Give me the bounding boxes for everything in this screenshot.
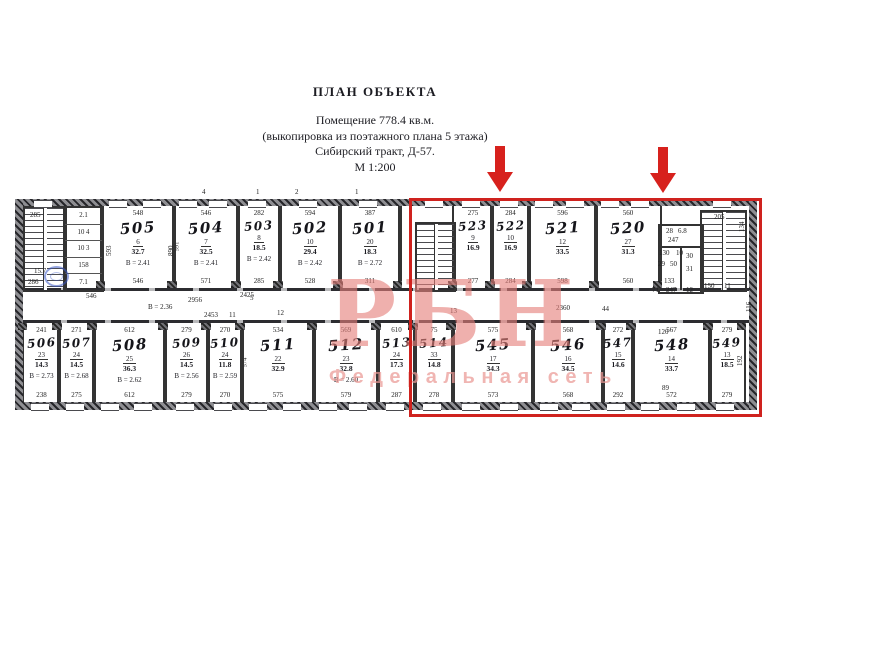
- window: [359, 200, 377, 208]
- room-pos-area: 632.7: [131, 238, 144, 257]
- blue-stamp-icon: [44, 266, 69, 287]
- room-506: 2415062314.3В = 2.73238: [22, 323, 61, 402]
- window: [176, 403, 194, 411]
- window: [143, 200, 161, 208]
- wall-pier: [236, 323, 245, 330]
- plan-annotation: 593: [106, 246, 113, 257]
- room-bottom-label: 571: [201, 277, 212, 285]
- plan-annotation: В = 2.36: [148, 304, 172, 311]
- room-number: 504: [188, 218, 225, 238]
- room-area: 11.8: [219, 360, 232, 369]
- outer-wall: [15, 199, 23, 410]
- window: [109, 200, 127, 208]
- storage-room-label: 10 3: [65, 241, 102, 258]
- plan-annotation: 286: [28, 279, 39, 286]
- room-pos-area: 2018.3: [363, 238, 376, 257]
- room-pos-area: 2314.3: [35, 351, 48, 370]
- room-bottom-label: 270: [220, 391, 231, 399]
- red-arrow-down-icon: [487, 146, 513, 193]
- room-position: 25: [123, 355, 136, 364]
- room-number: 506: [26, 335, 56, 351]
- room-height: В = 2.56: [174, 372, 198, 380]
- room-top-label: 534: [273, 326, 284, 334]
- room-height: В = 2.41: [126, 259, 150, 267]
- room-area: 14.5: [70, 360, 83, 369]
- room-position: 7: [201, 238, 211, 247]
- storage-block: 2.110 410 31587.1: [63, 206, 104, 292]
- plan-annotation: 285: [30, 212, 41, 219]
- room-504: 546504732.5В = 2.41571591: [172, 206, 240, 288]
- wall-pier: [18, 323, 27, 330]
- room-height: В = 2.41: [194, 259, 218, 267]
- room-top-label: 387: [365, 209, 376, 217]
- room-bottom-label: 285: [254, 277, 265, 285]
- wall-pier: [159, 323, 168, 330]
- room-top-label: 546: [201, 209, 212, 217]
- room-510: 2705102411.8В = 2.59270: [206, 323, 244, 402]
- room-position: 24: [219, 351, 232, 360]
- room-position: 10: [304, 238, 317, 247]
- window: [134, 403, 152, 411]
- room-area: 18.3: [363, 247, 376, 256]
- plan-annotation: 11: [229, 312, 236, 319]
- room-pos-area: 2414.5: [70, 351, 83, 370]
- plan-annotation: 2956: [188, 297, 202, 304]
- plan-annotation: 1: [355, 189, 359, 196]
- room-bottom-label: 275: [71, 391, 82, 399]
- plan-annotation: 2: [295, 189, 299, 196]
- room-bottom-label: 528: [305, 277, 316, 285]
- plan-annotation: 2425: [240, 292, 254, 299]
- room-height: В = 2.68: [64, 372, 88, 380]
- plan-annotation: 1: [256, 189, 260, 196]
- wall-pier: [232, 281, 241, 288]
- plan-annotation: 12: [277, 310, 284, 317]
- room-pos-area: 2411.8: [219, 351, 232, 370]
- room-pos-area: 2232.9: [271, 355, 284, 374]
- wall-pier: [96, 281, 105, 288]
- room-area: 18.5: [252, 243, 265, 252]
- room-pos-area: 732.5: [199, 238, 212, 257]
- room-number: 511: [260, 335, 297, 355]
- wall-pier: [88, 323, 97, 330]
- room-number: 503: [244, 218, 274, 234]
- room-top-label: 282: [254, 209, 265, 217]
- room-area: 32.9: [271, 364, 284, 373]
- room-position: 22: [272, 355, 285, 364]
- wall-pier: [308, 323, 317, 330]
- room-pos-area: 2614.5: [180, 351, 193, 370]
- room-number: 502: [292, 218, 329, 238]
- room-509: 2795092614.5В = 2.56279: [163, 323, 210, 402]
- window: [179, 200, 197, 208]
- room-bottom-label: 238: [36, 391, 47, 399]
- room-number: 505: [120, 218, 157, 238]
- room-side-label: 574: [241, 357, 248, 367]
- wall-pier: [274, 281, 283, 288]
- room-position: 6: [133, 238, 143, 247]
- room-bottom-label: 546: [133, 277, 144, 285]
- window: [66, 403, 84, 411]
- window: [283, 403, 301, 411]
- room-position: 24: [70, 351, 83, 360]
- room-number: 501: [352, 218, 389, 238]
- room-top-label: 612: [124, 326, 135, 334]
- window: [299, 200, 317, 208]
- room-height: В = 2.42: [247, 255, 271, 263]
- room-area: 14.5: [180, 360, 193, 369]
- room-height: В = 2.42: [298, 259, 322, 267]
- window: [34, 200, 52, 208]
- window: [31, 403, 49, 411]
- room-area: 32.7: [131, 247, 144, 256]
- room-top-label: 270: [220, 326, 231, 334]
- room-bottom-label: 579: [341, 391, 352, 399]
- storage-room-label: 10 4: [65, 225, 102, 242]
- plan-annotation: 4: [202, 189, 206, 196]
- wall-pier: [202, 323, 211, 330]
- room-top-label: 548: [133, 209, 144, 217]
- room-top-label: 594: [305, 209, 316, 217]
- window: [209, 200, 227, 208]
- room-position: 23: [35, 351, 48, 360]
- arrow-head: [650, 173, 676, 193]
- room-pos-area: 818.5: [252, 234, 265, 253]
- room-top-label: 279: [181, 326, 192, 334]
- room-position: 26: [180, 351, 193, 360]
- storage-room-label: 158: [65, 258, 102, 275]
- room-height: В = 2.73: [29, 372, 53, 380]
- plan-annotation: 546: [86, 293, 97, 300]
- room-position: 8: [254, 234, 264, 243]
- arrow-stem: [658, 147, 668, 174]
- arrow-head: [487, 172, 513, 192]
- room-area: 32.5: [199, 247, 212, 256]
- room-511: 5345112232.9575574: [240, 323, 316, 402]
- room-area: 36.3: [123, 364, 136, 373]
- window: [101, 403, 119, 411]
- arrow-stem: [495, 146, 505, 173]
- storage-room-label: 2.1: [65, 208, 102, 225]
- room-bottom-label: 575: [273, 391, 284, 399]
- room-bottom-label: 287: [391, 391, 402, 399]
- room-pos-area: 1029.4: [303, 238, 316, 257]
- plan-annotation: 2453: [204, 312, 218, 319]
- document-page: ПЛАН ОБЪЕКТА Помещение 778.4 кв.м. (выко…: [0, 0, 870, 652]
- room-number: 508: [111, 335, 148, 355]
- window: [248, 200, 266, 208]
- window: [386, 403, 404, 411]
- red-arrow-down-icon: [650, 147, 676, 194]
- room-number: 510: [210, 335, 240, 351]
- window: [319, 403, 337, 411]
- room-bottom-label: 612: [124, 391, 135, 399]
- plan-annotation: 890: [168, 246, 175, 257]
- room-508: 6125082536.3В = 2.62612: [92, 323, 167, 402]
- room-height: В = 2.62: [117, 376, 141, 384]
- room-height: В = 2.59: [213, 372, 237, 380]
- room-position: 20: [364, 238, 377, 247]
- room-number: 509: [171, 335, 201, 351]
- room-top-label: 271: [71, 326, 82, 334]
- window: [349, 403, 367, 411]
- wall-pier: [168, 281, 177, 288]
- room-top-label: 241: [36, 326, 47, 334]
- wall-pier: [53, 323, 62, 330]
- room-area: 14.3: [35, 360, 48, 369]
- room-503: 282503818.5В = 2.42285: [236, 206, 282, 288]
- highlight-rectangle: [409, 198, 762, 417]
- room-507: 2715072414.5В = 2.68275: [57, 323, 96, 402]
- room-pos-area: 2536.3: [123, 355, 136, 374]
- room-bottom-label: 279: [181, 391, 192, 399]
- window: [214, 403, 232, 411]
- room-area: 29.4: [303, 247, 316, 256]
- window: [249, 403, 267, 411]
- room-number: 507: [61, 335, 91, 351]
